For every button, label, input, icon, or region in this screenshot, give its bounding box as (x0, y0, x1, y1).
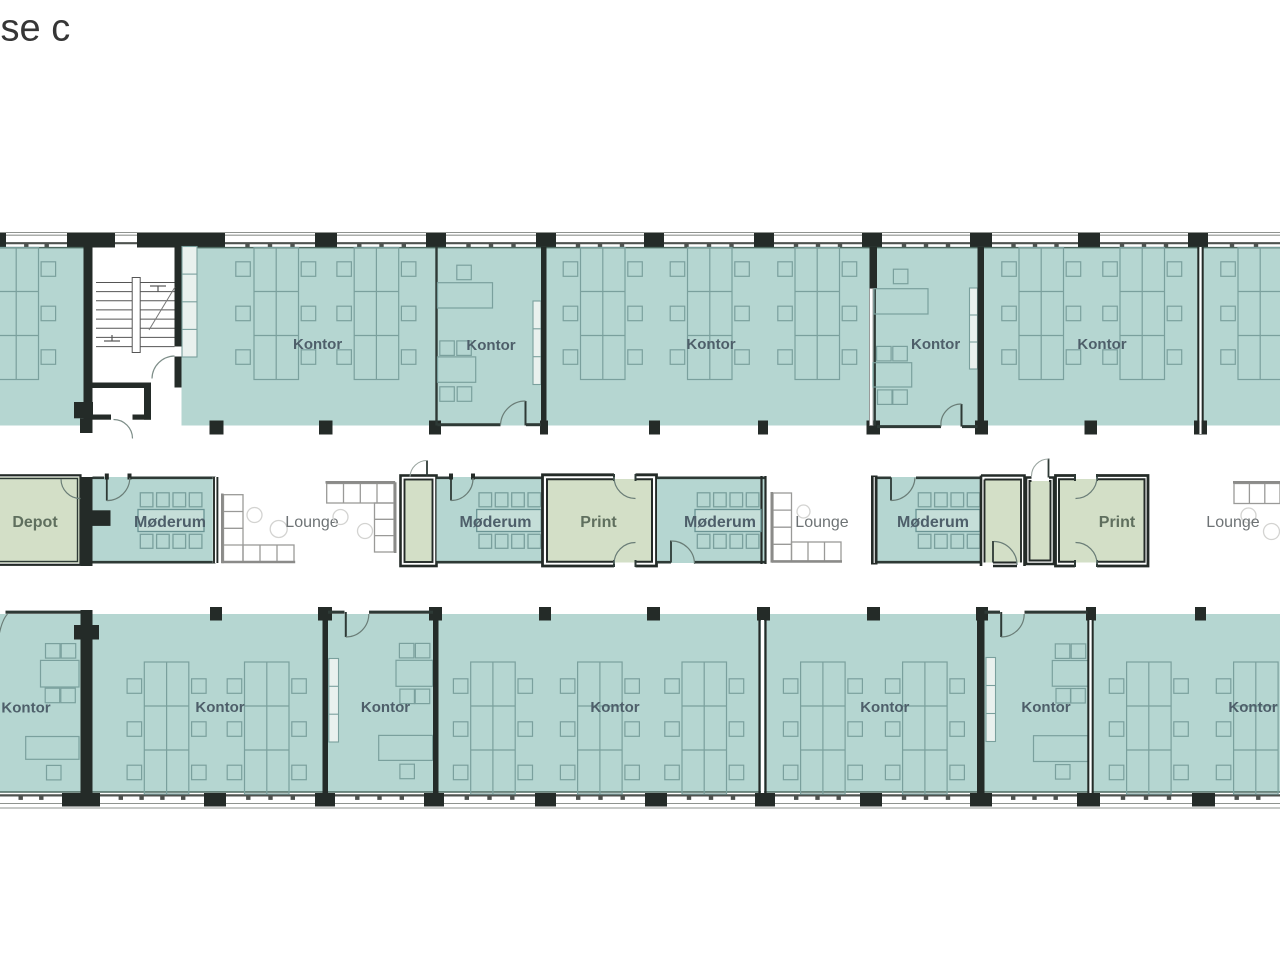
svg-text:Print: Print (1099, 514, 1136, 531)
svg-text:Kontor: Kontor (466, 337, 515, 354)
svg-text:Kontor: Kontor (195, 699, 244, 716)
svg-text:Kontor: Kontor (1021, 699, 1070, 716)
svg-text:Kontor: Kontor (686, 336, 735, 353)
svg-text:Lounge: Lounge (1206, 514, 1259, 531)
svg-text:Møderum: Møderum (897, 514, 969, 531)
svg-text:Lounge: Lounge (795, 514, 848, 531)
svg-text:Kontor: Kontor (361, 699, 410, 716)
svg-text:Møderum: Møderum (134, 514, 206, 531)
svg-text:Lounge: Lounge (285, 514, 338, 531)
svg-text:Print: Print (580, 514, 617, 531)
svg-text:Kontor: Kontor (590, 699, 639, 716)
svg-text:se c: se c (1, 8, 71, 50)
svg-text:Kontor: Kontor (293, 336, 342, 353)
svg-text:Depot: Depot (12, 514, 58, 531)
svg-text:Kontor: Kontor (1228, 699, 1277, 716)
svg-text:Kontor: Kontor (911, 336, 960, 353)
svg-text:Kontor: Kontor (860, 699, 909, 716)
svg-text:Kontor: Kontor (1077, 336, 1126, 353)
svg-text:Kontor: Kontor (1, 700, 50, 717)
svg-text:Møderum: Møderum (684, 514, 756, 531)
svg-text:Møderum: Møderum (460, 514, 532, 531)
